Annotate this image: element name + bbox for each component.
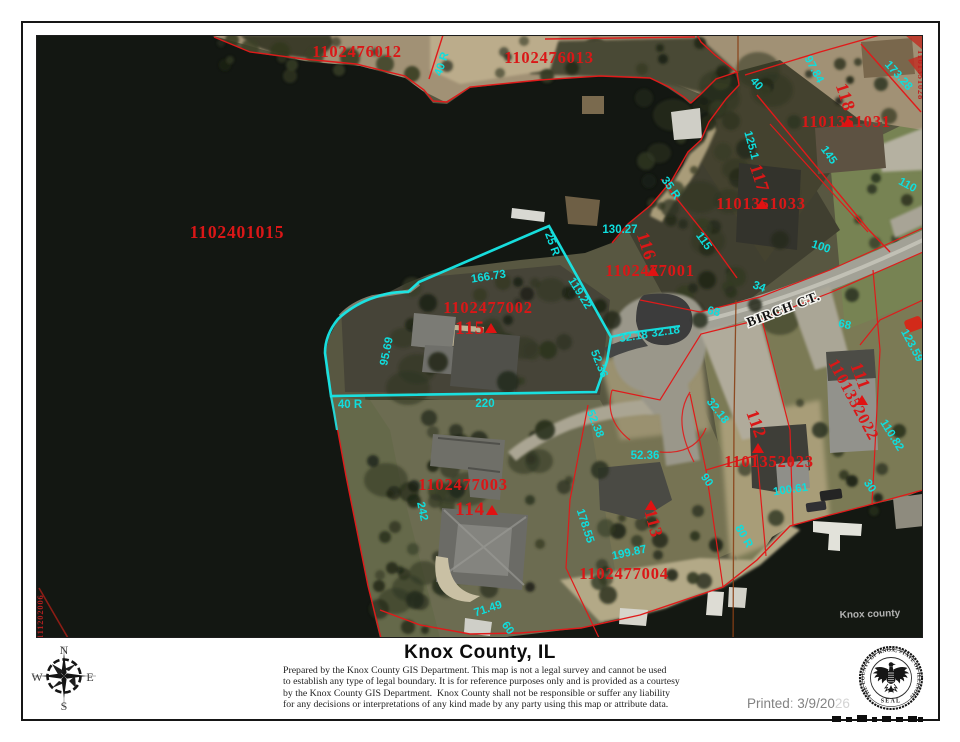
svg-text:Knox county: Knox county <box>839 608 900 621</box>
svg-text:1102477002: 1102477002 <box>443 298 533 317</box>
svg-text:S: S <box>61 699 68 713</box>
svg-text:1102477004: 1102477004 <box>579 564 669 583</box>
svg-text:115: 115 <box>455 318 485 339</box>
svg-text:52.36: 52.36 <box>631 450 660 462</box>
svg-text:114: 114 <box>455 499 485 520</box>
svg-text:1102476012: 1102476012 <box>312 42 402 61</box>
svg-text:SEAL: SEAL <box>881 699 901 705</box>
svg-text:130.27: 130.27 <box>602 224 637 236</box>
svg-text:1101351028: 1101351028 <box>916 50 923 100</box>
svg-text:1102477003: 1102477003 <box>418 475 508 494</box>
svg-text:E: E <box>86 670 93 684</box>
svg-text:N: N <box>60 643 69 657</box>
svg-text:1101352023: 1101352023 <box>724 452 814 471</box>
svg-text:1111202006: 1111202006 <box>36 594 45 638</box>
svg-text:1102477001: 1102477001 <box>605 261 695 280</box>
svg-text:W: W <box>31 670 43 684</box>
svg-text:40 R: 40 R <box>338 399 363 411</box>
svg-text:220: 220 <box>475 398 494 410</box>
svg-text:1102476013: 1102476013 <box>504 48 594 67</box>
svg-text:1102401015: 1102401015 <box>190 222 285 242</box>
